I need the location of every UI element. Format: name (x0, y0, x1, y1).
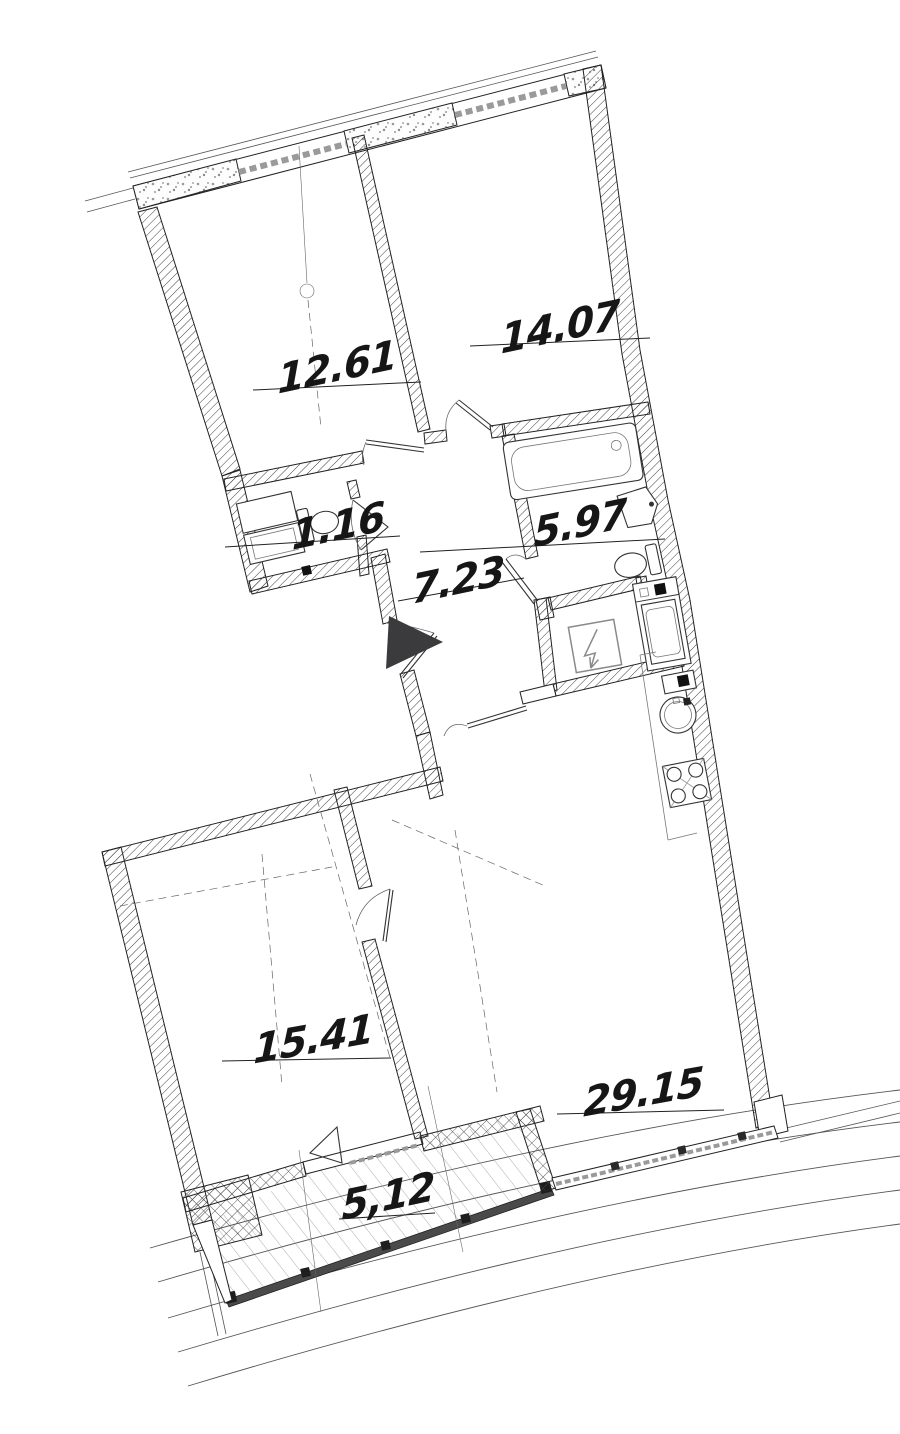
stove-icon (662, 758, 711, 807)
electrical-panel-icon (568, 619, 621, 672)
floor-plan-svg: 12.61 14.07 1.16 7.23 5.97 15.41 29.15 5… (0, 0, 900, 1434)
floor-plan-canvas: 12.61 14.07 1.16 7.23 5.97 15.41 29.15 5… (0, 0, 900, 1434)
hall-wall-stub (424, 430, 447, 444)
